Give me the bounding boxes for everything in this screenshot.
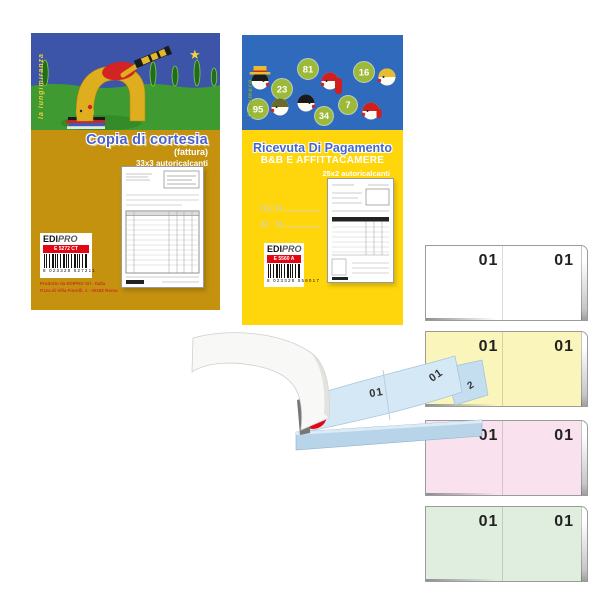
- bubble-7: 7: [339, 96, 358, 115]
- right-pad-subtitle: B&B E AFFITTACAMERE: [242, 155, 403, 166]
- bubble-23: 23: [272, 79, 293, 100]
- left-pad-title: Copia di cortesia: [86, 132, 208, 148]
- right-pad-tagline: il numero: [247, 53, 254, 117]
- perforation-line: [502, 332, 503, 406]
- to-number-line: [285, 219, 321, 227]
- ticket-number-right: 01: [554, 252, 574, 270]
- ticket-number-left: 01: [479, 252, 499, 270]
- right-pad-brand-label: EDIPRO E 5560 A 8 023328 556017: [264, 243, 304, 287]
- invoice-form-preview: [121, 166, 204, 288]
- svg-text:81: 81: [303, 64, 314, 75]
- perforation-line: [502, 421, 503, 495]
- faces-numbers-illustration: 23 81 16: [242, 35, 403, 130]
- open-ticket-book: 2 01 01: [185, 330, 495, 460]
- star-icon: ★: [189, 47, 201, 62]
- bubble-81: 81: [298, 59, 319, 80]
- page-stack-edge: [581, 246, 587, 320]
- barcode-digits: 8 023328 556017: [267, 278, 301, 283]
- lifted-page: [192, 333, 329, 430]
- right-pad-spec: 25x2 autoricalcanti: [322, 169, 390, 178]
- product-code: E 5560 A: [267, 255, 301, 263]
- faces-illustration-svg: 23 81 16: [242, 35, 403, 130]
- edipro-logo: EDIPRO: [267, 245, 301, 254]
- left-pad-brand-label: EDIPRO E 5272 CT 8 023328 527211: [40, 233, 92, 278]
- ticket-number-right: 01: [554, 338, 574, 356]
- page-stack-shadow: [426, 493, 581, 495]
- page-stack-shadow: [426, 579, 581, 581]
- page-stack-edge: [581, 332, 587, 406]
- product-collage: ★: [0, 0, 600, 600]
- perforation-line: [502, 507, 503, 581]
- ticket-number-right: 01: [554, 513, 574, 531]
- svg-text:23: 23: [277, 84, 288, 95]
- page-stack-edge: [581, 421, 587, 495]
- page-stack-edge: [581, 507, 587, 581]
- invoice-form-svg: [122, 167, 203, 287]
- from-number-label: Dal N.: [260, 203, 321, 213]
- left-pad-tagline: la lungimiranza: [38, 45, 45, 119]
- page-stack-shadow: [426, 318, 581, 320]
- ticket-block-green: 01 01: [425, 506, 588, 582]
- bubble-16: 16: [354, 62, 375, 83]
- svg-text:16: 16: [359, 67, 370, 78]
- svg-text:34: 34: [319, 111, 329, 121]
- sheet-number-left: 01: [368, 386, 384, 400]
- telescope-illustration-svg: ★: [31, 33, 220, 130]
- product-code: E 5272 CT: [43, 245, 89, 253]
- right-pad-title: Ricevuta Di Pagamento: [242, 141, 403, 155]
- telescope-illustration: ★: [31, 33, 220, 130]
- left-pad-subtitle: (fattura): [174, 147, 208, 157]
- barcode-digits: 8 023328 527211: [43, 268, 89, 273]
- invoice-pad-cover: ★: [31, 33, 220, 310]
- to-number-label: Al N.: [260, 219, 321, 229]
- edipro-logo: EDIPRO: [43, 235, 89, 244]
- ticket-number-left: 01: [479, 513, 499, 531]
- receipt-form-preview: [327, 178, 394, 283]
- perforation-line: [502, 246, 503, 320]
- manufacturer-footer: Prodotto da EDIPRO Srl - Italia P.zza di…: [40, 281, 118, 295]
- bubble-34: 34: [315, 107, 334, 126]
- receipt-form-svg: [328, 179, 393, 282]
- receipt-pad-cover: 23 81 16: [242, 35, 403, 325]
- barcode: [44, 254, 88, 268]
- svg-text:7: 7: [345, 100, 350, 110]
- from-number-line: [285, 203, 321, 211]
- ticket-number-right: 01: [554, 427, 574, 445]
- barcode: [268, 264, 300, 278]
- svg-text:95: 95: [253, 104, 264, 115]
- ticket-block-white: 01 01: [425, 245, 588, 321]
